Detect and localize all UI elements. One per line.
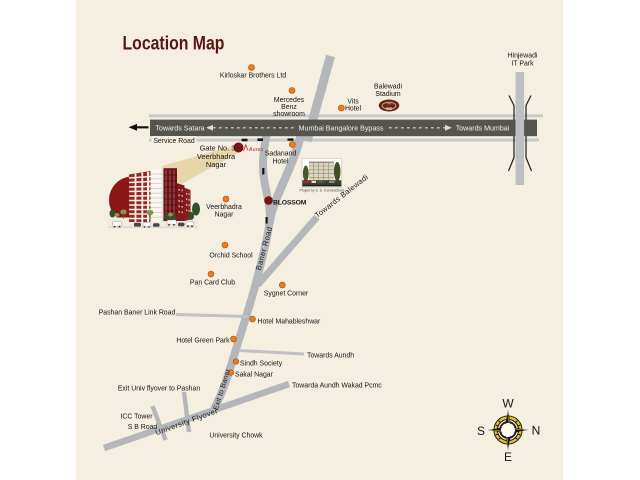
svg-text:Aures: Aures — [248, 147, 264, 153]
svg-text:Exit Univ flyover to Pashan: Exit Univ flyover to Pashan — [118, 386, 201, 393]
svg-text:Vits: Vits — [347, 99, 359, 106]
svg-text:BLOSSOM: BLOSSOM — [273, 200, 307, 207]
svg-text:Hotel Green Park: Hotel Green Park — [176, 338, 230, 345]
svg-text:Sygnet Corner: Sygnet Corner — [264, 291, 309, 298]
svg-text:E: E — [504, 450, 512, 464]
svg-text:Stadium: Stadium — [375, 91, 401, 98]
svg-text:Towards Satara: Towards Satara — [155, 125, 204, 133]
svg-text:Orchid School: Orchid School — [209, 253, 253, 260]
svg-text:Veerbhadra: Veerbhadra — [206, 204, 242, 211]
svg-text:ICC Tower: ICC Tower — [120, 414, 153, 421]
svg-text:Mercedes: Mercedes — [274, 97, 305, 104]
svg-text:Sindh Society: Sindh Society — [240, 361, 283, 368]
svg-text:Towards Aundh: Towards Aundh — [307, 353, 354, 360]
svg-text:Nagar: Nagar — [206, 160, 227, 169]
svg-text:Benz: Benz — [281, 104, 297, 111]
svg-text:Project by S. S. Constructions: Project by S. S. Constructions — [299, 188, 344, 192]
svg-text:Sakal Nagar: Sakal Nagar — [235, 372, 274, 379]
svg-text:Nagar: Nagar — [215, 212, 234, 219]
svg-text:Hinjewadi: Hinjewadi — [508, 53, 538, 60]
svg-text:W: W — [502, 397, 514, 411]
svg-text:Pashan Baner Link Road: Pashan Baner Link Road — [99, 310, 176, 317]
svg-text:showroom: showroom — [273, 111, 305, 118]
svg-text:Towards Mumbai: Towards Mumbai — [456, 125, 510, 133]
svg-text:IT Park: IT Park — [511, 61, 534, 68]
svg-text:Hotel: Hotel — [345, 106, 362, 113]
svg-text:Location Map: Location Map — [123, 32, 225, 54]
svg-text:N: N — [532, 424, 541, 438]
svg-text:Pan Card Club: Pan Card Club — [190, 280, 235, 287]
svg-text:S: S — [477, 424, 485, 438]
svg-text:Hotel Mahableshwar: Hotel Mahableshwar — [258, 319, 322, 326]
svg-text:Mumbai Bangalore Bypass: Mumbai Bangalore Bypass — [299, 125, 384, 133]
svg-text:Hotel: Hotel — [272, 159, 289, 166]
svg-text:S B Road: S B Road — [128, 424, 158, 431]
svg-text:Towarda Aundh Wakad Pcmc: Towarda Aundh Wakad Pcmc — [292, 383, 382, 390]
svg-text:Kirloskar Brothers Ltd: Kirloskar Brothers Ltd — [220, 73, 286, 80]
svg-text:Service Road: Service Road — [153, 138, 195, 145]
svg-text:Sadanand: Sadanand — [265, 151, 297, 158]
svg-text:University Chowk: University Chowk — [209, 433, 263, 440]
svg-text:Balewadi: Balewadi — [374, 84, 402, 91]
